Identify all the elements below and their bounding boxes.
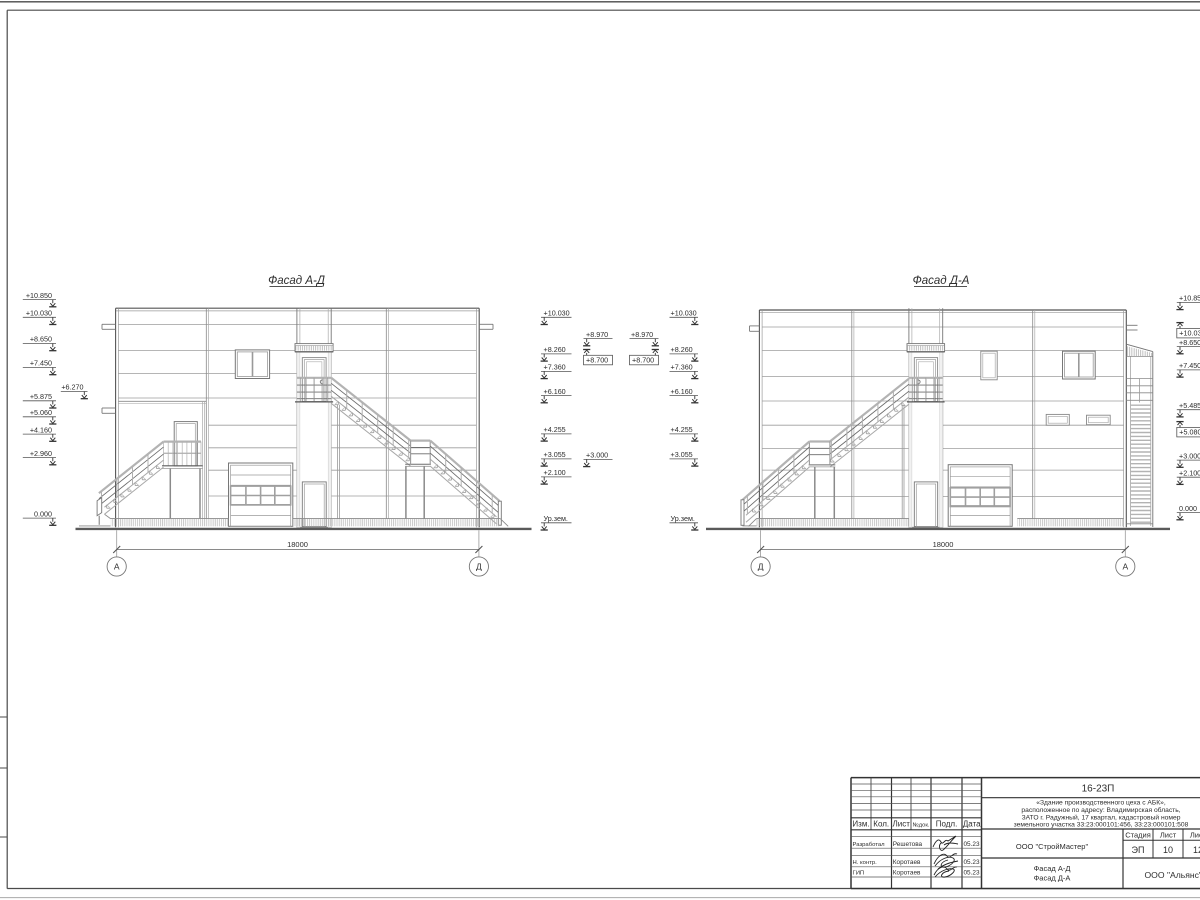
svg-text:Фасад Д-А: Фасад Д-А: [1034, 874, 1071, 883]
svg-text:+4.160: +4.160: [30, 425, 52, 434]
svg-text:+8.260: +8.260: [544, 345, 566, 354]
svg-text:+6.160: +6.160: [544, 387, 566, 396]
svg-text:Кол.: Кол.: [873, 820, 889, 829]
svg-text:земельного участка 33:23:00010: земельного участка 33:23:000101:456, 33:…: [1014, 822, 1189, 829]
svg-text:05.23: 05.23: [964, 870, 980, 877]
svg-text:+4.255: +4.255: [544, 425, 566, 434]
svg-text:+8.700: +8.700: [632, 356, 654, 365]
svg-text:10: 10: [1163, 845, 1173, 855]
svg-text:Лист: Лист: [893, 820, 911, 829]
svg-text:Ур.зем.: Ур.зем.: [671, 514, 695, 523]
svg-text:+7.360: +7.360: [671, 363, 693, 372]
svg-text:0.000: 0.000: [34, 509, 52, 518]
svg-text:А: А: [114, 562, 120, 572]
svg-text:Н. контр.: Н. контр.: [853, 860, 878, 866]
svg-text:+8.970: +8.970: [586, 330, 608, 339]
svg-text:Решетова: Решетова: [893, 841, 923, 848]
svg-text:+10.030: +10.030: [1179, 329, 1200, 338]
svg-text:+2.960: +2.960: [30, 449, 52, 458]
svg-text:18000: 18000: [287, 540, 308, 549]
svg-text:Д: Д: [476, 562, 482, 572]
svg-text:+2.100: +2.100: [1179, 468, 1200, 477]
svg-text:+10.030: +10.030: [671, 309, 697, 318]
svg-text:+7.450: +7.450: [30, 359, 52, 368]
svg-text:+4.255: +4.255: [671, 425, 693, 434]
svg-text:+8.650: +8.650: [1179, 338, 1200, 347]
svg-text:+3.000: +3.000: [586, 451, 608, 460]
svg-text:Коротаев: Коротаев: [893, 859, 921, 866]
svg-text:ГИП: ГИП: [853, 870, 865, 876]
svg-text:Дата: Дата: [963, 820, 981, 829]
svg-text:16-23П: 16-23П: [1082, 784, 1115, 795]
svg-text:+8.650: +8.650: [30, 335, 52, 344]
svg-text:Разработал: Разработал: [853, 842, 886, 848]
svg-text:+5.060: +5.060: [30, 408, 52, 417]
svg-text:Стадия: Стадия: [1125, 831, 1151, 840]
svg-text:+7.360: +7.360: [544, 363, 566, 372]
svg-text:+3.055: +3.055: [544, 450, 566, 459]
svg-text:Изм.: Изм.: [852, 820, 869, 829]
svg-text:+10.030: +10.030: [26, 309, 52, 318]
svg-text:+10.850: +10.850: [26, 291, 52, 300]
svg-text:Подл.: Подл.: [936, 820, 958, 829]
svg-text:ЭП: ЭП: [1132, 845, 1145, 855]
svg-text:12: 12: [1193, 845, 1200, 855]
svg-text:расположенное по адресу: Влади: расположенное по адресу: Владимирская об…: [1021, 806, 1180, 814]
svg-text:Фасад А-Д: Фасад А-Д: [268, 275, 325, 287]
svg-text:Фасад А-Д: Фасад А-Д: [1034, 864, 1071, 873]
svg-text:+6.270: +6.270: [61, 383, 83, 392]
svg-text:ООО "Альянс": ООО "Альянс": [1145, 870, 1200, 880]
svg-text:+8.970: +8.970: [631, 330, 653, 339]
svg-text:+2.100: +2.100: [544, 468, 566, 477]
svg-text:+8.700: +8.700: [586, 356, 608, 365]
svg-text:№док.: №док.: [913, 822, 930, 828]
svg-text:05.23: 05.23: [964, 859, 980, 866]
svg-text:«Здание производственного цеха: «Здание производственного цеха с АБК»,: [1036, 800, 1166, 807]
svg-text:Д: Д: [758, 562, 764, 572]
svg-text:18000: 18000: [933, 540, 954, 549]
svg-text:Ур.зем.: Ур.зем.: [544, 514, 568, 523]
svg-text:+10.850: +10.850: [1179, 294, 1200, 303]
svg-text:+3.000: +3.000: [1179, 451, 1200, 460]
svg-text:+7.450: +7.450: [1179, 361, 1200, 370]
svg-text:Лист: Лист: [1190, 831, 1200, 840]
svg-text:А: А: [1122, 562, 1128, 572]
svg-text:+5.080: +5.080: [1179, 428, 1200, 437]
svg-text:ЗАТО г. Радужный, 17 квартал,: ЗАТО г. Радужный, 17 квартал, кадастровы…: [1022, 813, 1181, 821]
svg-text:+5.875: +5.875: [30, 392, 52, 401]
svg-text:Фасад Д-А: Фасад Д-А: [913, 275, 970, 287]
svg-text:05.23: 05.23: [964, 841, 980, 848]
svg-text:+3.055: +3.055: [671, 450, 693, 459]
svg-text:+5.485: +5.485: [1179, 401, 1200, 410]
svg-text:+6.160: +6.160: [671, 387, 693, 396]
svg-text:+10.030: +10.030: [544, 309, 570, 318]
svg-text:+8.260: +8.260: [671, 345, 693, 354]
svg-text:Лист: Лист: [1160, 831, 1177, 840]
svg-text:0.000: 0.000: [1179, 504, 1197, 513]
svg-text:ООО "СтройМастер": ООО "СтройМастер": [1016, 842, 1089, 851]
svg-text:Коротаев: Коротаев: [893, 869, 921, 876]
